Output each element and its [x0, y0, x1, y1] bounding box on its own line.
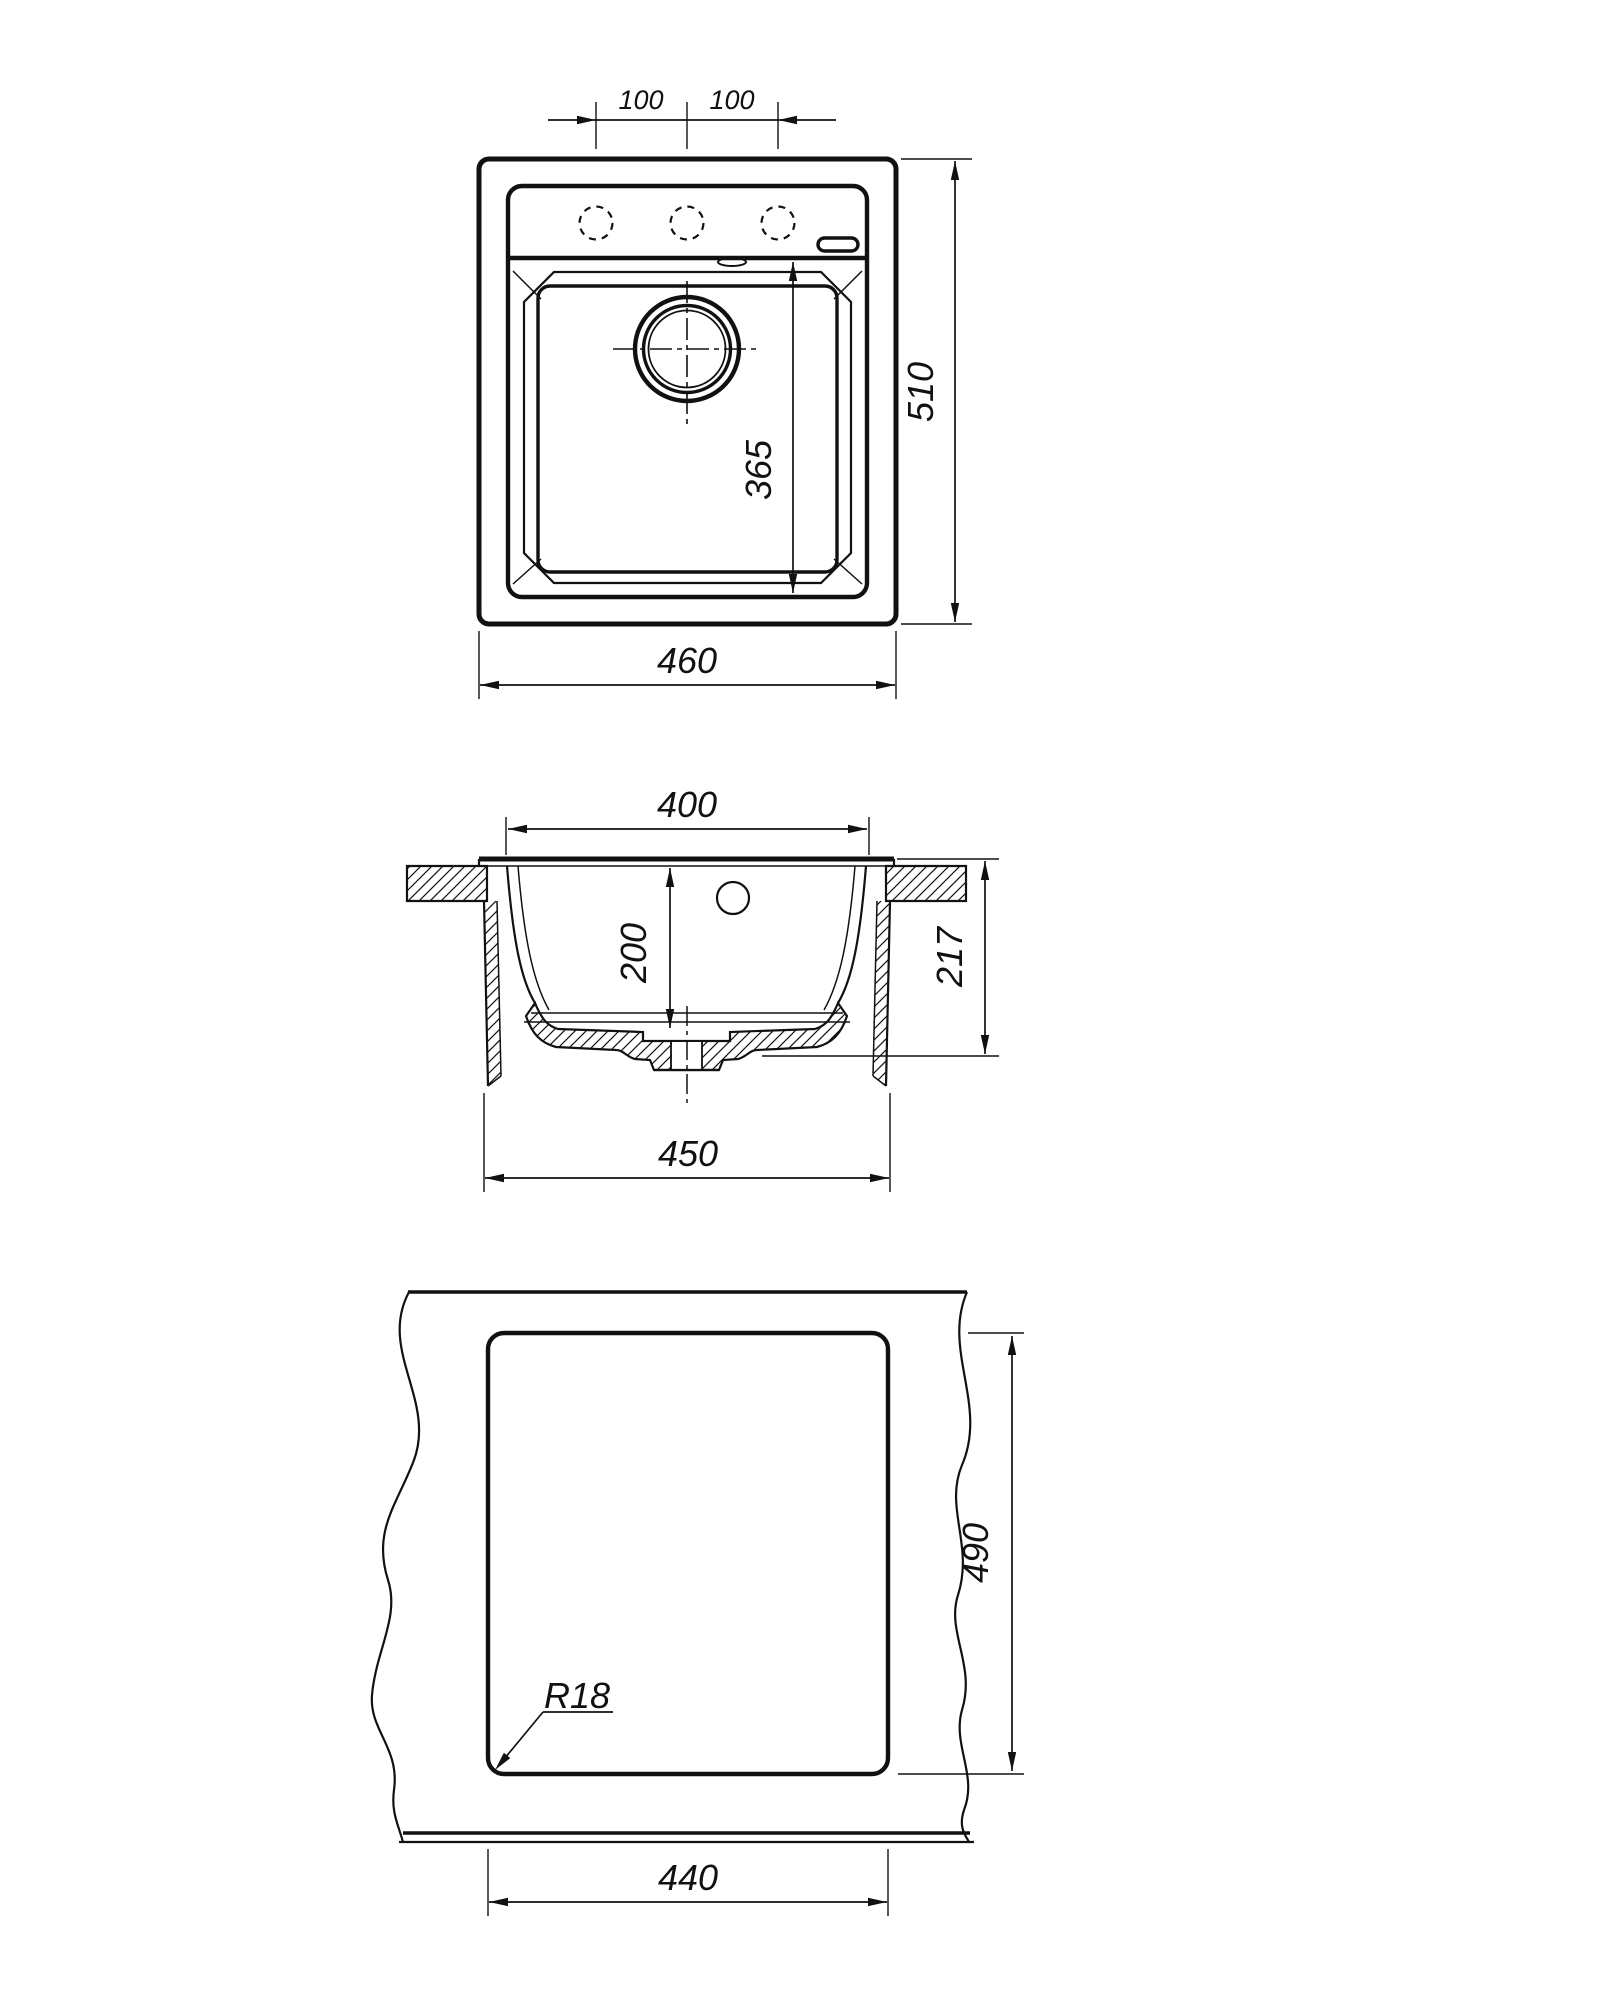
overflow-hole [717, 882, 749, 914]
dim-217-label: 217 [929, 925, 970, 988]
faucet-hole-right [762, 207, 795, 240]
dim-460-label: 460 [657, 640, 717, 681]
arrowhead [577, 116, 596, 124]
arrowhead [480, 681, 499, 689]
countertop-hatch-left [407, 866, 487, 901]
bowl-wall-far-left [518, 866, 549, 1010]
arrowhead [489, 1898, 508, 1906]
arrowhead [508, 825, 527, 833]
arrowhead [868, 1898, 887, 1906]
bowl-corner-facet [834, 559, 862, 584]
dim-100-left-label: 100 [618, 85, 663, 115]
dim-200-label: 200 [613, 923, 654, 984]
dim-cutout-height: 490 [898, 1333, 1024, 1774]
dim-510-label: 510 [900, 362, 941, 422]
dim-overall-depth: 510 [900, 159, 972, 624]
arrowhead [876, 681, 895, 689]
arrowhead [951, 161, 959, 180]
arrowhead [666, 1009, 674, 1028]
arrowhead [981, 861, 989, 880]
break-line-left [372, 1292, 419, 1842]
top-view: 100 100 365 510 460 [479, 85, 972, 699]
dim-100-right-label: 100 [709, 85, 754, 115]
corner-radius-callout: R18 [495, 1675, 613, 1770]
drain [613, 281, 760, 424]
dim-400-label: 400 [657, 784, 717, 825]
dim-450-label: 450 [658, 1133, 718, 1174]
arrowhead [666, 868, 674, 887]
dim-440-label: 440 [658, 1857, 718, 1898]
dim-490-label: 490 [955, 1523, 996, 1583]
dim-bowl-top-width: 400 [506, 784, 869, 855]
arrowhead [951, 603, 959, 622]
countertop-section [407, 866, 966, 901]
dim-overall-width: 460 [479, 631, 896, 699]
dim-365-label: 365 [738, 439, 779, 500]
sink-technical-drawing: 100 100 365 510 460 [0, 0, 1600, 2011]
bowl-contours [513, 271, 862, 584]
arrowhead [870, 1174, 889, 1182]
arrowhead [485, 1174, 504, 1182]
bowl-wall-right [838, 866, 866, 1003]
dim-cutout-width: 440 [488, 1849, 888, 1916]
faucet-holes [580, 207, 795, 240]
bowl-corner-facet [834, 271, 862, 299]
bowl-corner-facet [513, 559, 541, 584]
bowl-corner-facet [513, 271, 541, 299]
dim-underside-width: 450 [484, 1093, 890, 1192]
arrowhead [848, 825, 867, 833]
section-view: 400 200 217 450 [407, 784, 999, 1192]
dim-hole-spacing: 100 100 [548, 85, 836, 149]
arrowhead [981, 1035, 989, 1054]
arrowhead [1008, 1336, 1016, 1355]
drawing-page: 100 100 365 510 460 [0, 0, 1600, 2011]
faucet-hole-center [671, 207, 704, 240]
dim-bowl-depth: 200 [613, 868, 674, 1028]
arrowhead [778, 116, 797, 124]
arrowhead [1008, 1752, 1016, 1771]
r18-label: R18 [544, 1675, 610, 1716]
cutout-template-view: R18 490 440 [372, 1292, 1024, 1916]
faucet-hole-left [580, 207, 613, 240]
deck-slot [818, 238, 858, 251]
bowl-wall-far-right [824, 866, 855, 1010]
dim-bowl-length: 365 [738, 262, 797, 593]
countertop-hatch-right [886, 866, 966, 901]
bowl-wall-left [507, 866, 535, 1003]
